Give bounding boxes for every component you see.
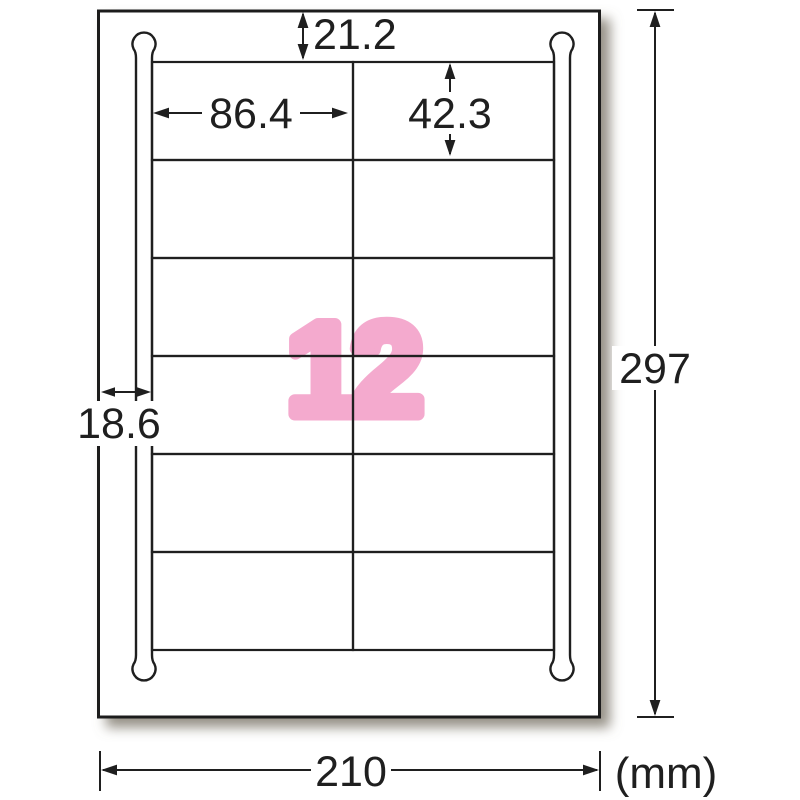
side-margin-value: 18.6 [77, 400, 161, 448]
label-height-value: 42.3 [408, 90, 492, 138]
dim-sheet-height: 297 [612, 10, 698, 717]
label-sheet-diagram: 12 21.2 86.4 [0, 0, 800, 800]
arrow-left-icon [101, 765, 117, 776]
dim-sheet-width: 210 [100, 748, 600, 796]
diagram-svg: 12 21.2 86.4 [0, 0, 800, 800]
sheet-width-value: 210 [315, 748, 387, 796]
arrow-right-icon [583, 765, 599, 776]
label-width-value: 86.4 [209, 90, 293, 138]
top-margin-value: 21.2 [313, 11, 397, 59]
arrow-up-icon [650, 11, 661, 27]
unit-note: (mm) [615, 749, 718, 798]
dim-top-margin: 21.2 [298, 11, 397, 60]
arrow-down-icon [650, 700, 661, 716]
sheet-height-value: 297 [619, 345, 691, 393]
